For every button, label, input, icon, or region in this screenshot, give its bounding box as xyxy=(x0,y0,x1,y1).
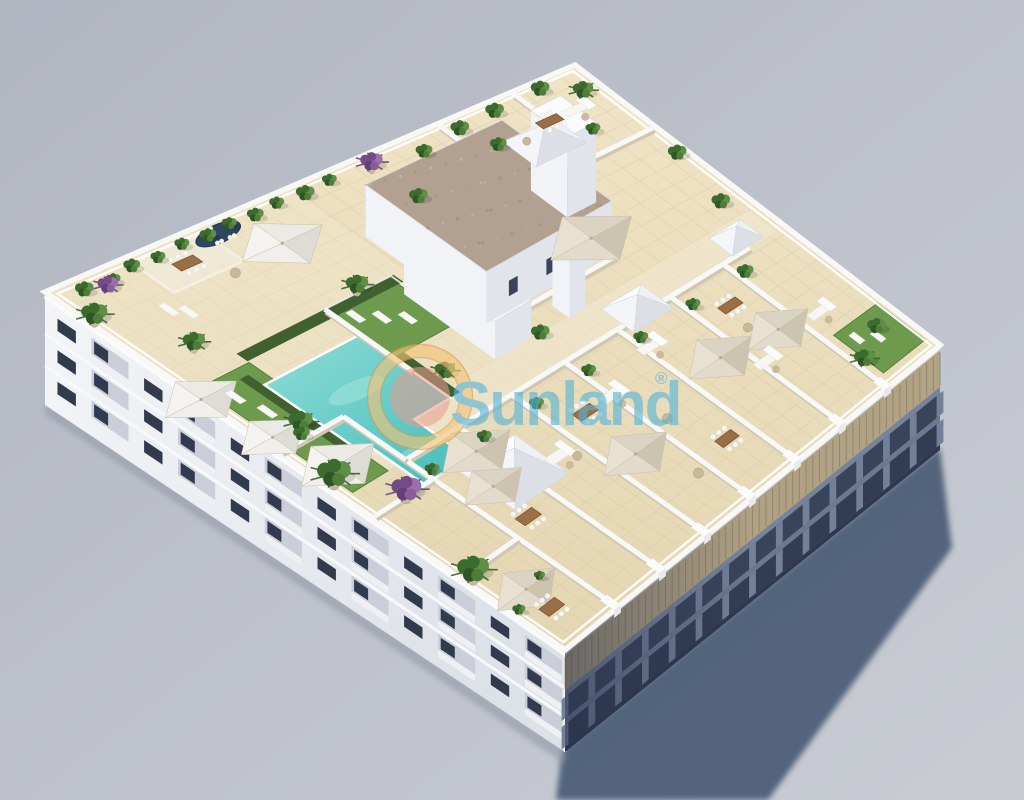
plant-foliage xyxy=(673,144,681,152)
plant-foliage xyxy=(367,152,376,161)
gravel-speckle xyxy=(514,172,516,174)
gravel-speckle xyxy=(482,241,485,244)
chimney-wall-se xyxy=(570,251,586,318)
chair xyxy=(547,110,552,115)
chair xyxy=(232,233,237,238)
plant-foliage xyxy=(467,556,480,569)
plant-foliage xyxy=(582,90,590,98)
plant-foliage xyxy=(720,201,727,208)
plant-foliage xyxy=(131,266,137,272)
gravel-speckle xyxy=(511,232,514,235)
gravel-speckle xyxy=(426,226,429,229)
building-aerial-render: Sunland ® xyxy=(0,0,1024,800)
chair xyxy=(711,434,716,439)
plant-foliage xyxy=(417,196,424,203)
plant-foliage xyxy=(83,289,90,296)
plant-foliage xyxy=(228,223,234,229)
umbrella-pole xyxy=(271,436,274,439)
plant-foliage xyxy=(863,358,871,366)
plant-foliage xyxy=(640,337,646,343)
chair xyxy=(186,270,191,275)
chair xyxy=(564,607,569,612)
watermark-brand-text: Sunland xyxy=(450,370,681,439)
gravel-speckle xyxy=(365,184,367,186)
gravel-speckle xyxy=(485,209,488,212)
gravel-speckle xyxy=(484,181,486,183)
plant-foliage xyxy=(93,314,103,324)
plant-foliage xyxy=(459,128,466,135)
plant-foliage xyxy=(537,571,542,576)
plant-foliage xyxy=(676,152,683,159)
chair xyxy=(720,297,725,302)
plant-foliage xyxy=(157,257,163,263)
plant-foliage xyxy=(81,281,89,289)
chair xyxy=(735,309,740,314)
gravel-speckle xyxy=(442,222,444,224)
chair xyxy=(729,312,734,317)
plant-foliage xyxy=(875,326,882,333)
plant-foliage xyxy=(415,188,423,196)
coffee-table xyxy=(772,365,780,373)
plant-foliage xyxy=(579,81,587,89)
plant-foliage xyxy=(456,120,464,128)
gravel-speckle xyxy=(490,150,493,153)
plant-foliage xyxy=(296,411,306,421)
side-table xyxy=(743,323,752,332)
gravel-speckle xyxy=(539,223,542,226)
gravel-speckle xyxy=(465,186,467,188)
gravel-speckle xyxy=(600,204,602,206)
plant-foliage xyxy=(332,473,345,486)
plant-foliage xyxy=(431,469,437,475)
plant-foliage xyxy=(744,271,750,277)
gravel-speckle xyxy=(497,237,499,239)
chair xyxy=(738,438,743,443)
plant-foliage xyxy=(326,174,332,180)
side-table xyxy=(230,268,240,278)
gravel-speckle xyxy=(596,205,599,208)
chair xyxy=(553,615,558,620)
umbrella-pole xyxy=(492,485,495,488)
plant-foliage xyxy=(128,259,135,266)
gravel-speckle xyxy=(498,176,501,179)
plant-foliage xyxy=(860,349,868,357)
plant-foliage xyxy=(353,275,362,284)
plant-foliage xyxy=(329,180,335,186)
coffee-table xyxy=(566,461,574,469)
gravel-speckle xyxy=(554,219,556,221)
plant-foliage xyxy=(742,264,749,271)
gravel-speckle xyxy=(505,204,507,206)
plant-foliage xyxy=(207,235,213,241)
plant-foliage xyxy=(104,276,112,284)
plant-foliage xyxy=(254,215,260,221)
chair xyxy=(534,602,539,607)
plant-foliage xyxy=(405,489,417,501)
umbrella-pole xyxy=(777,328,780,331)
plant-foliage xyxy=(873,318,881,326)
plant-foliage xyxy=(497,144,503,150)
gravel-speckle xyxy=(384,179,386,181)
plant-foliage xyxy=(370,162,379,171)
chair xyxy=(714,301,719,306)
plant-foliage xyxy=(592,129,598,135)
chair xyxy=(539,598,544,603)
chair xyxy=(741,305,746,310)
umbrella-pole xyxy=(281,242,284,245)
gravel-speckle xyxy=(450,190,453,193)
plant-foliage xyxy=(429,463,435,469)
plant-foliage xyxy=(471,569,483,581)
chair xyxy=(194,267,199,272)
gravel-speckle xyxy=(480,181,483,184)
chair xyxy=(228,235,233,240)
side-table xyxy=(693,468,703,478)
gravel-speckle xyxy=(490,209,493,212)
gravel-speckle xyxy=(525,228,527,230)
plant-foliage xyxy=(327,459,341,473)
plant-foliage xyxy=(298,426,305,433)
plant-foliage xyxy=(252,208,259,215)
plant-foliage xyxy=(400,476,412,488)
plant-foliage xyxy=(205,228,212,235)
gravel-speckle xyxy=(445,163,447,165)
plant-foliage xyxy=(274,197,280,203)
plant-foliage xyxy=(539,332,546,339)
chair xyxy=(545,593,550,598)
gravel-speckle xyxy=(463,246,465,248)
plant-foliage xyxy=(423,151,429,157)
coffee-table xyxy=(656,351,664,359)
coffee-table xyxy=(581,113,589,121)
plant-foliage xyxy=(301,433,307,439)
chair xyxy=(559,611,564,616)
plant-foliage xyxy=(89,303,100,314)
gravel-speckle xyxy=(534,196,536,198)
umbrella-pole xyxy=(475,450,478,453)
chair xyxy=(562,121,567,126)
side-table xyxy=(523,137,531,145)
plant-foliage xyxy=(356,284,365,293)
chair xyxy=(522,503,527,508)
chair xyxy=(547,127,552,132)
plant-foliage xyxy=(107,285,115,293)
chair xyxy=(726,293,731,298)
chair xyxy=(727,446,732,451)
gravel-speckle xyxy=(528,168,531,171)
chair xyxy=(535,520,540,525)
plant-foliage xyxy=(491,103,499,111)
plant-foliage xyxy=(193,341,202,350)
plant-foliage xyxy=(516,604,521,609)
coffee-table xyxy=(825,316,833,324)
plant-foliage xyxy=(304,193,311,200)
plant-foliage xyxy=(494,111,501,118)
gravel-speckle xyxy=(368,183,371,186)
plant-foliage xyxy=(539,88,546,95)
umbrella-pole xyxy=(199,398,202,401)
gravel-speckle xyxy=(399,175,402,178)
plant-foliage xyxy=(590,122,596,128)
chair xyxy=(175,254,180,259)
gravel-speckle xyxy=(405,203,407,205)
chair xyxy=(733,442,738,447)
gravel-speckle xyxy=(460,158,463,161)
side-table xyxy=(573,451,582,460)
plant-foliage xyxy=(539,575,543,579)
plant-foliage xyxy=(181,244,187,250)
gravel-speckle xyxy=(475,154,477,156)
plant-foliage xyxy=(692,304,698,310)
logo-disc xyxy=(390,367,450,427)
gravel-speckle xyxy=(478,242,481,245)
gravel-speckle xyxy=(456,218,459,221)
plant-foliage xyxy=(536,81,544,89)
plant-foliage xyxy=(301,185,309,193)
plant-foliage xyxy=(495,137,502,144)
umbrella-pole xyxy=(525,588,528,591)
chair xyxy=(511,512,516,517)
chair xyxy=(516,507,521,512)
plant-foliage xyxy=(717,193,725,201)
gravel-speckle xyxy=(415,171,417,173)
chair xyxy=(541,516,546,521)
gravel-speckle xyxy=(436,195,438,197)
chair xyxy=(201,264,206,269)
chair xyxy=(183,251,188,256)
umbrella-pole xyxy=(719,356,722,359)
gravel-speckle xyxy=(582,210,584,212)
plant-foliage xyxy=(155,251,161,257)
chair xyxy=(722,426,727,431)
plant-foliage xyxy=(638,331,644,337)
chair xyxy=(554,124,559,129)
gravel-speckle xyxy=(471,214,473,216)
plant-foliage xyxy=(226,217,232,223)
umbrella-pole xyxy=(590,237,593,240)
plant-foliage xyxy=(537,324,545,332)
plant-foliage xyxy=(179,238,185,244)
chair xyxy=(533,116,538,121)
render-viewport: Sunland ® xyxy=(0,0,1024,800)
plant-foliage xyxy=(189,332,198,341)
plant-foliage xyxy=(518,609,523,614)
plant-foliage xyxy=(690,298,696,304)
plant-foliage xyxy=(421,144,428,151)
umbrella-pole xyxy=(634,452,637,455)
chair xyxy=(529,525,534,530)
plant-foliage xyxy=(276,203,282,209)
chair xyxy=(716,430,721,435)
gravel-speckle xyxy=(519,200,522,203)
chair xyxy=(540,113,545,118)
gravel-speckle xyxy=(429,166,432,169)
